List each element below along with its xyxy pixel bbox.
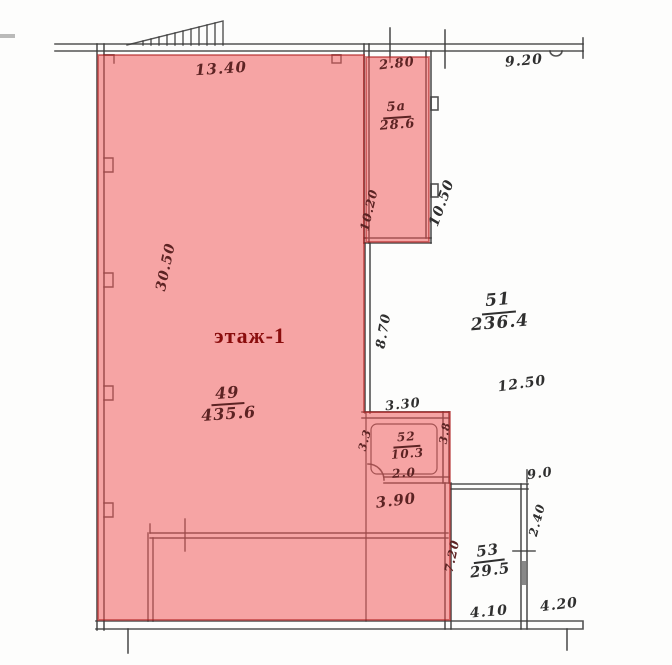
dimension-label: 2.0 bbox=[392, 466, 417, 480]
floorplan-linework bbox=[0, 0, 672, 665]
room-label: 49435.6 bbox=[199, 382, 257, 426]
wall-8-70 bbox=[365, 243, 370, 413]
dimension-label: 2.80 bbox=[379, 56, 416, 73]
dimension-label: 13.40 bbox=[195, 60, 248, 79]
room-label: 5210.3 bbox=[389, 430, 424, 463]
highlight-room-5a bbox=[366, 57, 429, 242]
room-label: 51236.4 bbox=[468, 288, 530, 335]
dimension-label: 9.0 bbox=[526, 466, 553, 482]
dimension-label: 9.20 bbox=[504, 52, 543, 69]
room-label: 5329.5 bbox=[467, 540, 512, 582]
room-area: 10.3 bbox=[391, 446, 425, 462]
room-label: 5а28.6 bbox=[378, 99, 416, 134]
dimension-label: 3.30 bbox=[385, 397, 422, 414]
room-area: 28.6 bbox=[379, 117, 416, 134]
dimension-label: 3.8 bbox=[438, 421, 453, 445]
floor-title: этаж-1 bbox=[214, 323, 286, 349]
stairs-hatch bbox=[127, 21, 223, 45]
room-area: 435.6 bbox=[201, 404, 257, 426]
dimension-label: 4.10 bbox=[469, 603, 508, 620]
floorplan-canvas: этаж-1 13.402.809.2010.2010.5030.508.701… bbox=[0, 0, 672, 665]
